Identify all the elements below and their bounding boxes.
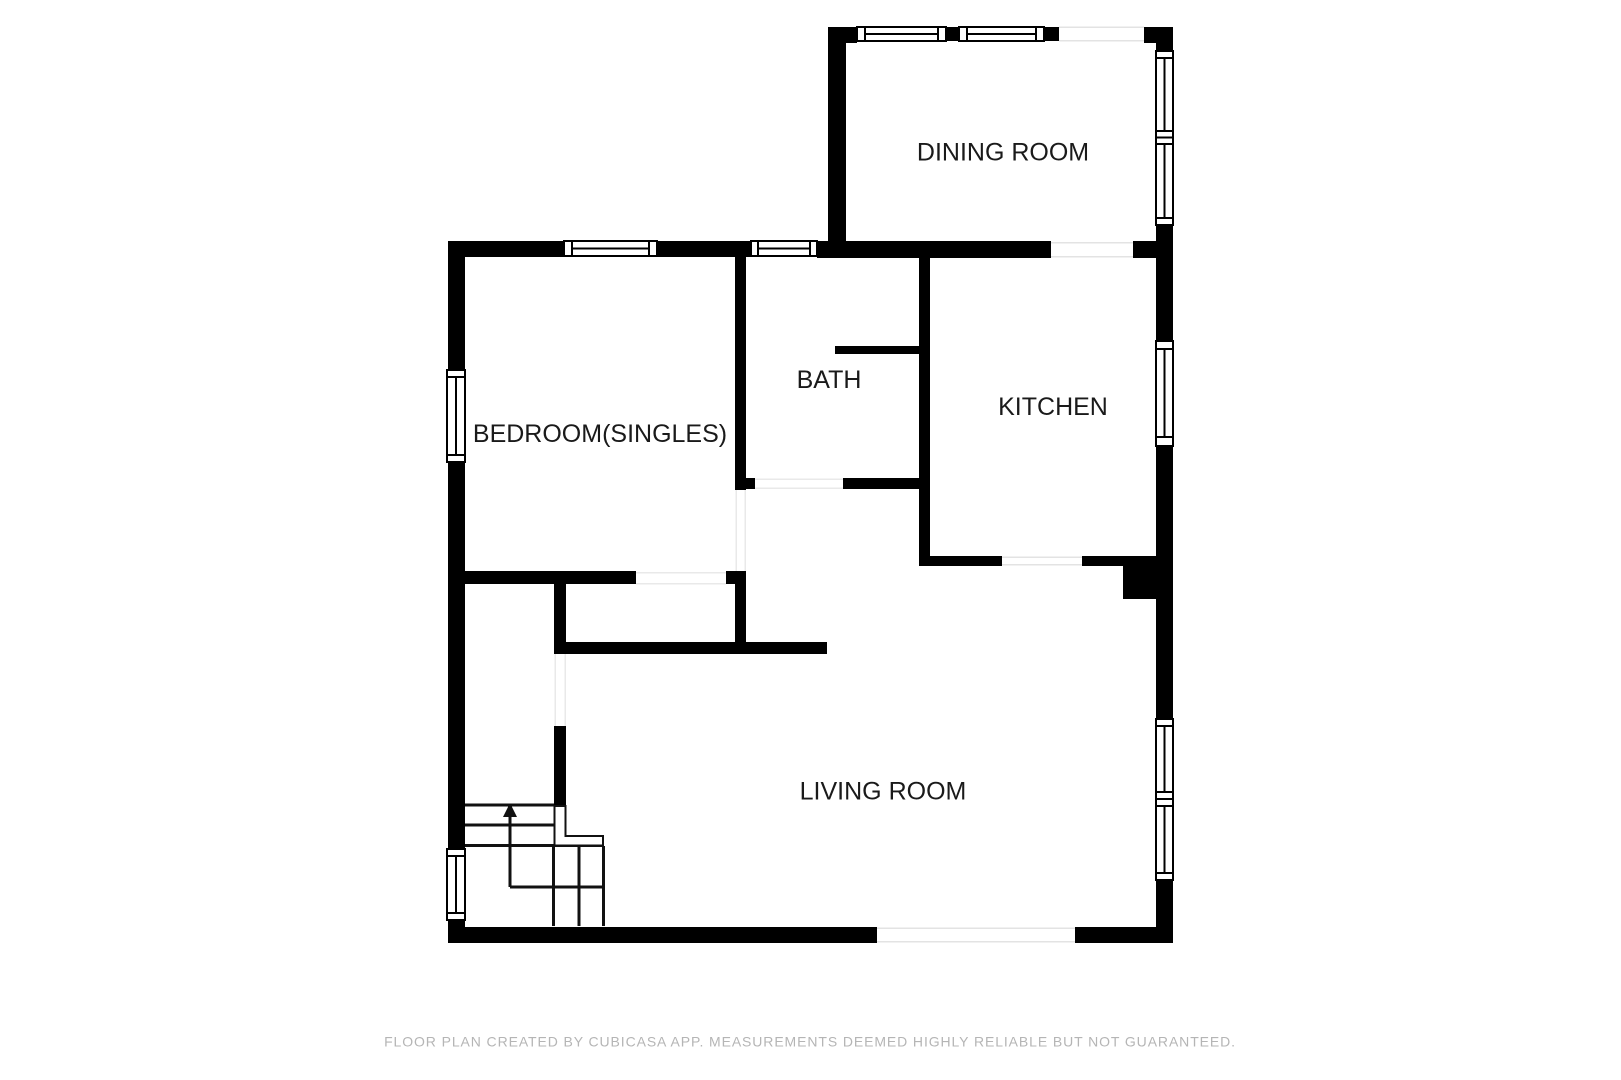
svg-text:BEDROOM(SINGLES): BEDROOM(SINGLES) (473, 420, 727, 448)
svg-text:KITCHEN: KITCHEN (998, 393, 1108, 421)
svg-text:DINING ROOM: DINING ROOM (917, 139, 1089, 167)
svg-text:LIVING ROOM: LIVING ROOM (800, 778, 967, 806)
svg-text:FLOOR PLAN CREATED BY CUBICASA: FLOOR PLAN CREATED BY CUBICASA APP. MEAS… (384, 1034, 1236, 1050)
svg-text:BATH: BATH (797, 366, 862, 394)
